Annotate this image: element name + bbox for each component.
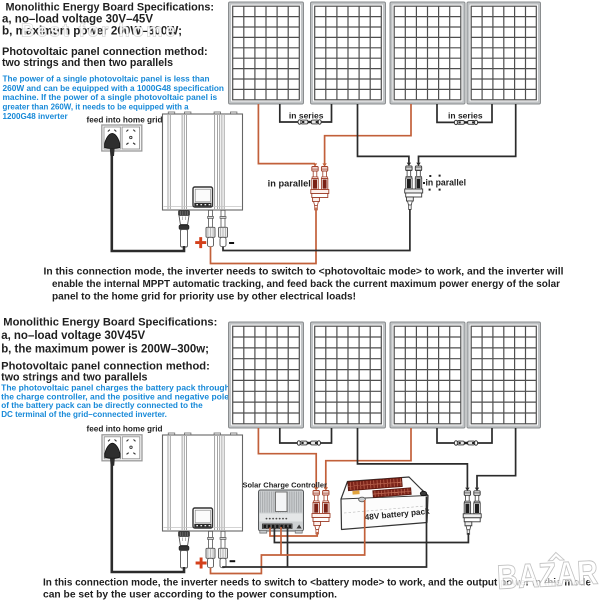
svg-text:Solar Charge Controller: Solar Charge Controller (243, 480, 327, 489)
svg-text:1200G48 inverter: 1200G48 inverter (3, 111, 69, 121)
svg-text:feed into home grid: feed into home grid (87, 115, 163, 124)
svg-text:two strings and then two paral: two strings and then two parallels (2, 57, 173, 69)
svg-text:in series: in series (289, 110, 324, 120)
svg-text:In this connection mode, the i: In this connection mode, the inverter ne… (44, 267, 564, 278)
svg-text:in series: in series (448, 110, 483, 120)
svg-text:Best for home: Best for home (21, 20, 178, 41)
svg-text:DC terminal of the grid–connec: DC terminal of the grid–connected invert… (1, 409, 167, 419)
svg-text:b, the maximum power is 200W–3: b, the maximum power is 200W–300w; (1, 342, 209, 355)
svg-text:can be set by the user accordi: can be set by the user according to the … (43, 590, 337, 600)
svg-text:a, no–load voltage 30V45V: a, no–load voltage 30V45V (1, 329, 145, 342)
svg-text:BAZAR: BAZAR (496, 554, 599, 597)
svg-text:in parallel: in parallel (426, 177, 467, 187)
svg-text:in parallel: in parallel (268, 179, 311, 189)
svg-text:feed into home grid: feed into home grid (87, 425, 163, 434)
svg-text:enable the internal MPPT autom: enable the internal MPPT automatic track… (52, 279, 560, 290)
svg-text:panel to the home grid for pri: panel to the home grid for priority use … (52, 292, 356, 303)
svg-text:Monolithic Energy Board Specif: Monolithic Energy Board Specifications: (3, 317, 217, 329)
